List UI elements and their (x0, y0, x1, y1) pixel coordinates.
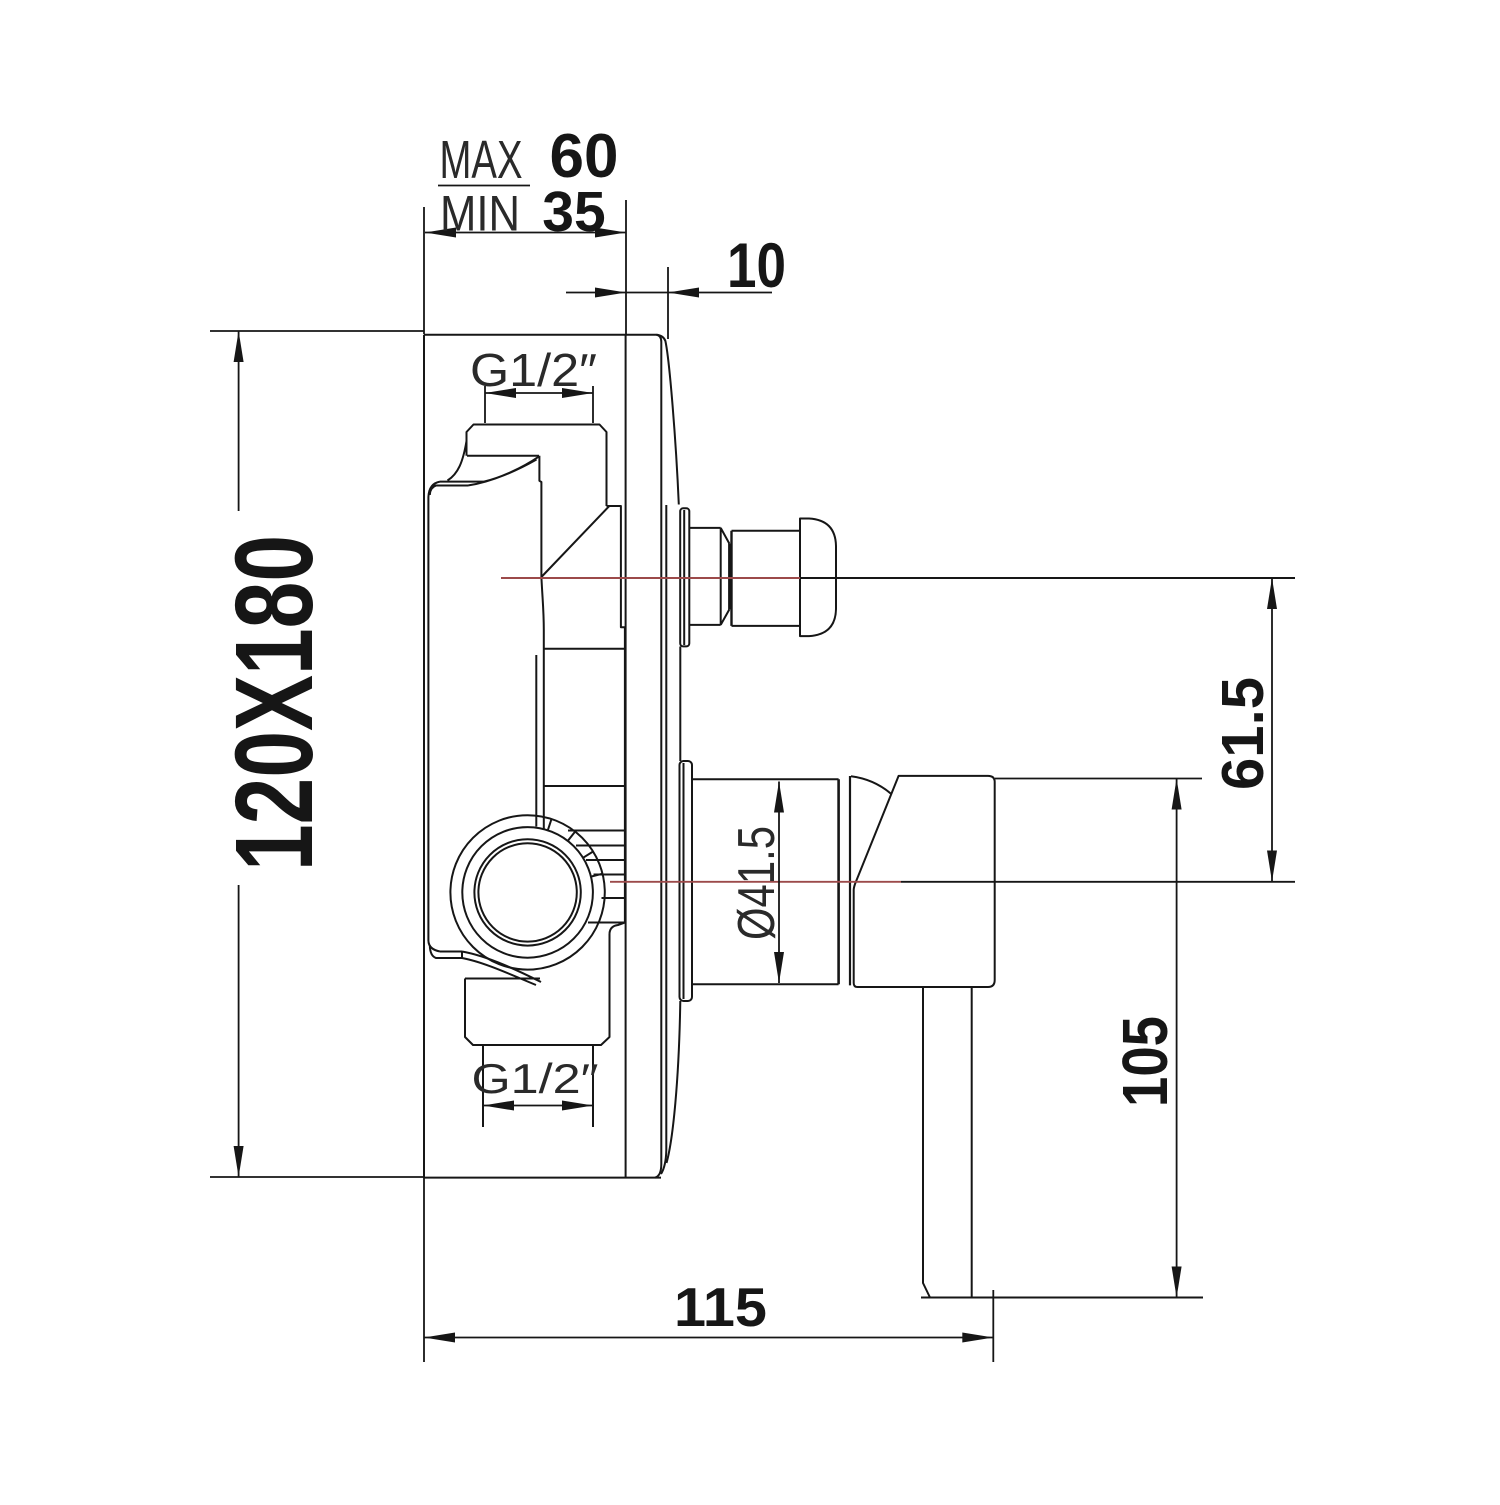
svg-text:10: 10 (727, 231, 786, 301)
svg-text:MAX: MAX (440, 130, 523, 190)
svg-text:MIN: MIN (440, 186, 520, 242)
svg-text:G1/2″: G1/2″ (472, 1055, 599, 1102)
svg-text:115: 115 (674, 1276, 767, 1338)
svg-text:35: 35 (542, 180, 605, 244)
svg-text:G1/2″: G1/2″ (470, 344, 597, 396)
svg-text:61.5: 61.5 (1210, 677, 1276, 790)
svg-text:120X180: 120X180 (213, 535, 336, 871)
svg-text:105: 105 (1109, 1016, 1181, 1107)
svg-text:Ø41.5: Ø41.5 (728, 826, 786, 940)
